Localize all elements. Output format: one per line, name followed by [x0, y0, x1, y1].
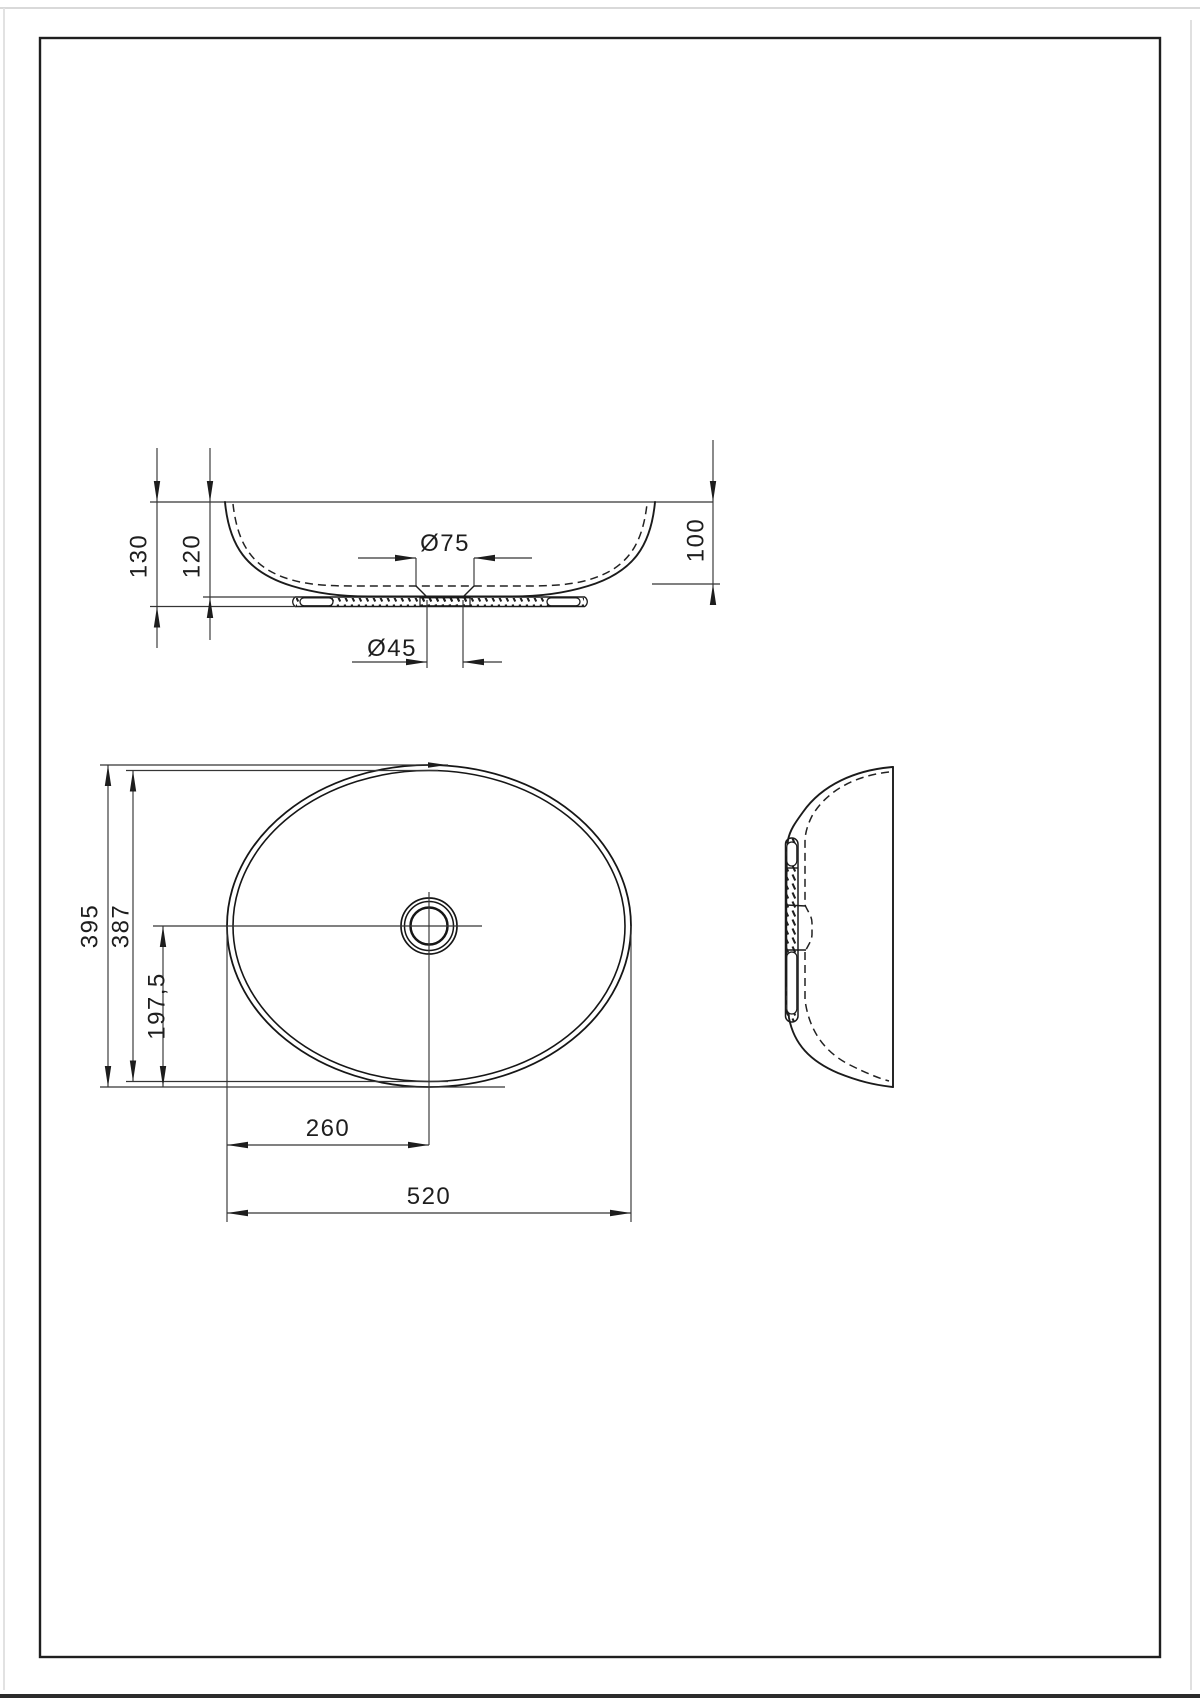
side-recess-hidden: [805, 905, 812, 952]
dim-395: 395: [77, 765, 112, 1087]
dim-520: 520: [227, 1183, 631, 1216]
sheet-frame: [40, 38, 1160, 1657]
dim-197-5: 197,5: [144, 926, 171, 1087]
dim-100: 100: [652, 440, 720, 605]
dim-label-d45: Ø45: [367, 635, 417, 662]
dim-label-260: 260: [306, 1115, 351, 1142]
dim-label-d75: Ø75: [420, 530, 470, 557]
dim-label-395: 395: [77, 904, 104, 949]
dim-label-520: 520: [407, 1183, 452, 1210]
centerlines: [153, 892, 482, 1145]
scan-edges: [0, 8, 1200, 1696]
dim-label-120: 120: [179, 534, 206, 579]
front-elevation-view: 130 120 Ø75 Ø45: [126, 440, 721, 668]
side-inner-hidden-profile: [805, 772, 889, 905]
drawing-sheet: 130 120 Ø75 Ø45: [0, 0, 1200, 1699]
reference-lines: [100, 762, 631, 1222]
dim-260: 260: [227, 1115, 429, 1148]
dim-label-100: 100: [683, 518, 710, 563]
dim-d75: Ø75: [358, 530, 532, 586]
technical-drawing: 130 120 Ø75 Ø45: [0, 0, 1200, 1699]
dim-label-197-5: 197,5: [144, 972, 171, 1040]
dim-387: 387: [108, 771, 137, 1082]
left-foot: [300, 598, 333, 606]
base-pad: [293, 597, 588, 607]
dim-120: 120: [179, 448, 297, 640]
dim-label-387: 387: [108, 904, 135, 949]
side-outer-profile: [786, 767, 893, 1087]
plan-view: 395 387 197,5 260 520: [77, 762, 632, 1222]
side-base-pad: [786, 838, 807, 1022]
dim-d45: Ø45: [352, 600, 502, 668]
right-foot: [547, 598, 580, 606]
dim-label-130: 130: [126, 534, 153, 579]
side-elevation-view: [786, 767, 894, 1087]
